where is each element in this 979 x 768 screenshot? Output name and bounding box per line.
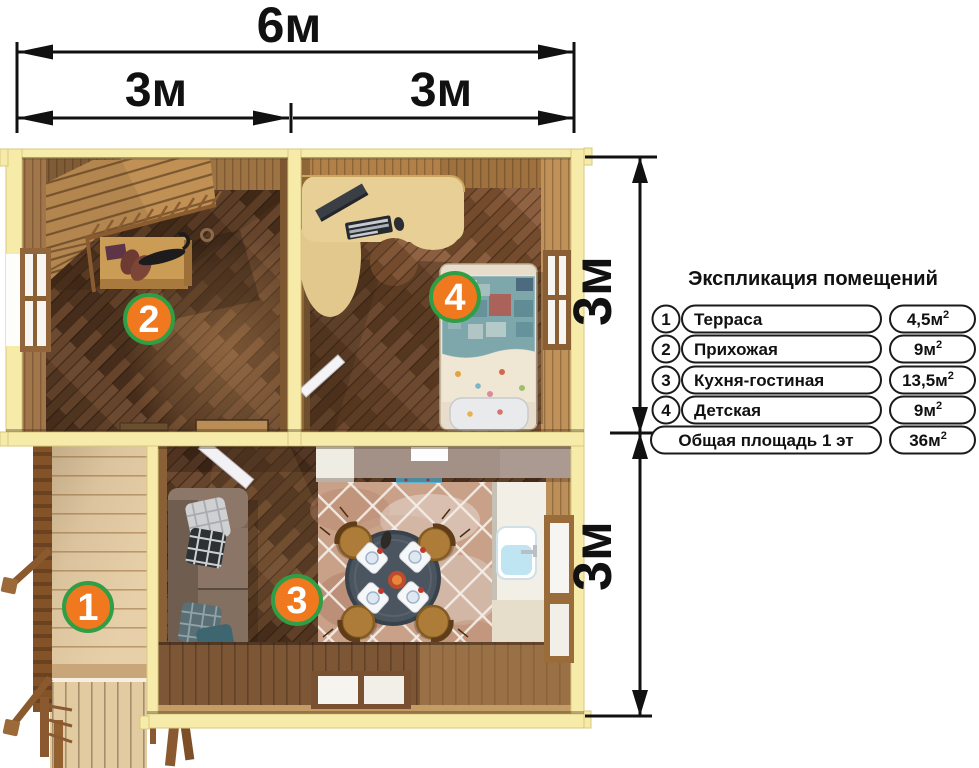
svg-text:2: 2 [661,340,670,359]
svg-text:1: 1 [661,310,670,329]
svg-text:Терраса: Терраса [694,310,763,329]
svg-text:2: 2 [138,299,159,341]
svg-text:13,5м2: 13,5м2 [902,370,954,390]
svg-text:3м: 3м [410,64,472,117]
svg-text:Детская: Детская [694,401,761,420]
svg-text:4,5м2: 4,5м2 [907,309,949,329]
svg-text:Общая площадь 1 эт: Общая площадь 1 эт [678,431,853,450]
svg-text:4: 4 [661,401,671,420]
svg-text:1: 1 [77,587,98,629]
svg-text:3м: 3м [563,521,623,591]
svg-text:Кухня-гостиная: Кухня-гостиная [694,371,824,390]
svg-text:3м: 3м [125,64,187,117]
svg-text:3: 3 [286,580,307,622]
svg-text:3м: 3м [563,256,623,326]
svg-text:4: 4 [444,277,465,319]
svg-text:Прихожая: Прихожая [694,340,778,359]
svg-text:6м: 6м [257,0,322,53]
svg-text:3: 3 [661,371,670,390]
svg-text:Экспликация помещений: Экспликация помещений [688,268,938,290]
